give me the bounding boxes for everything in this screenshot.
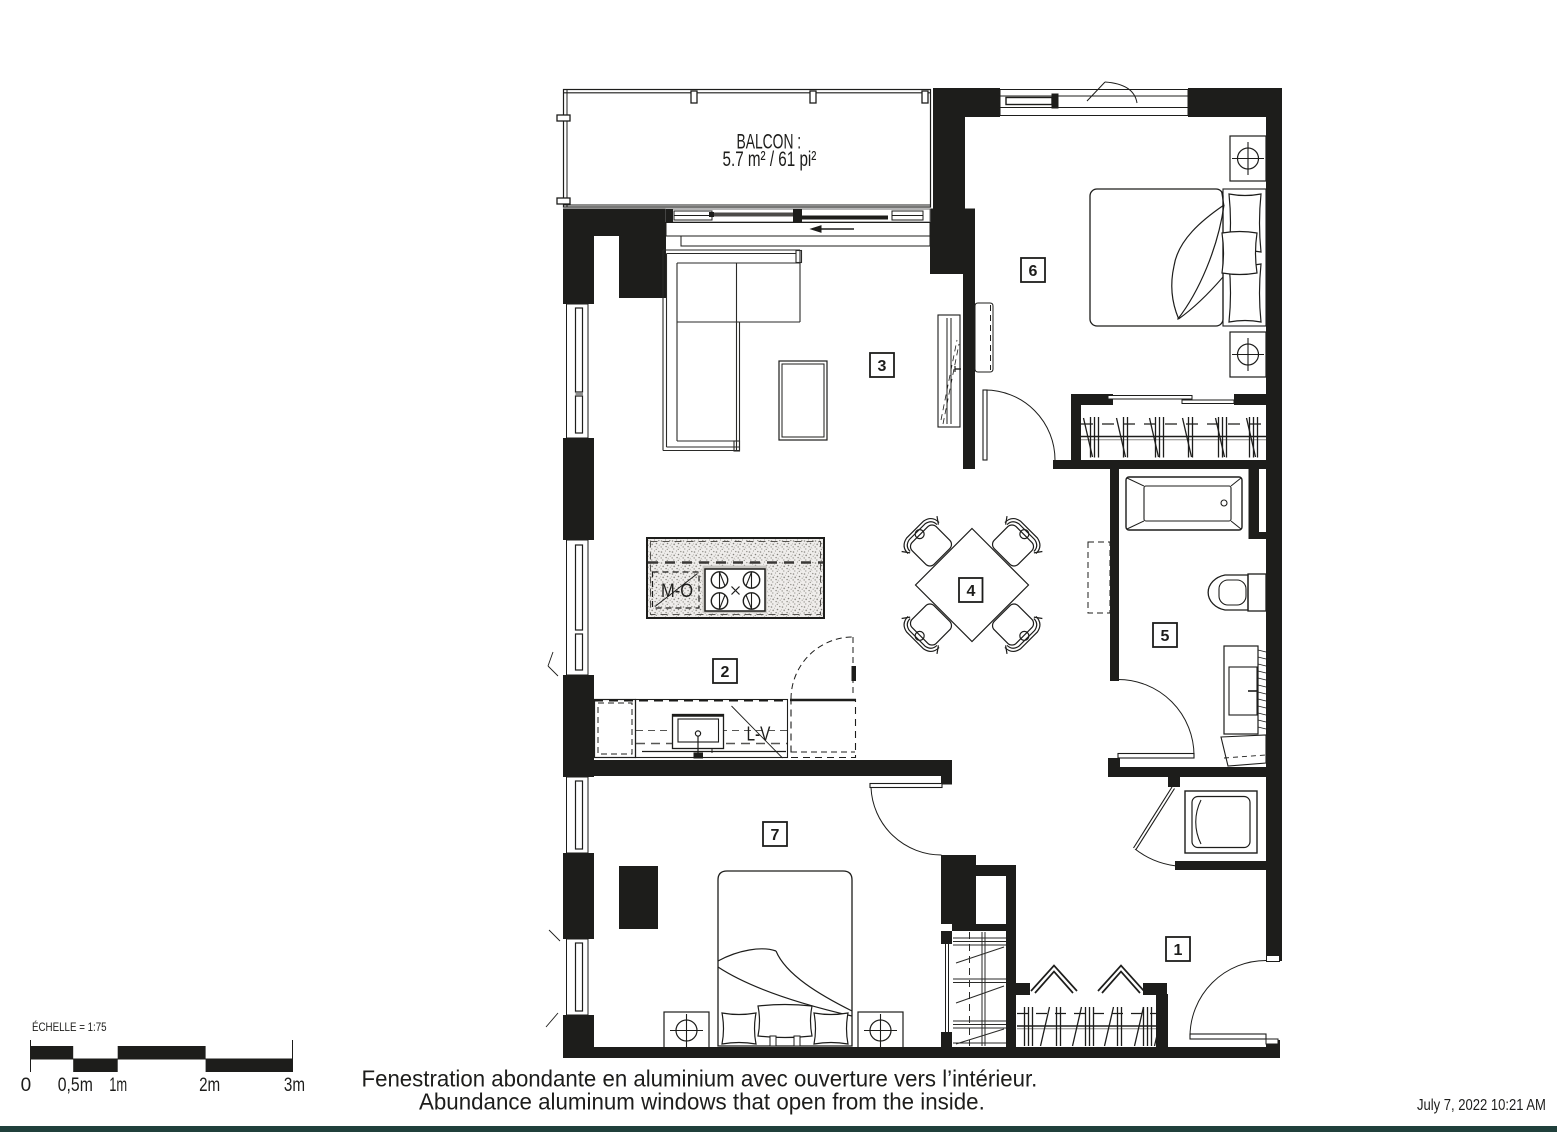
svg-text:5.7 m² / 61 pi²: 5.7 m² / 61 pi² [723, 146, 817, 170]
svg-text:July 7, 2022 10:21 AM: July 7, 2022 10:21 AM [1417, 1097, 1546, 1115]
svg-text:M-O: M-O [661, 580, 693, 601]
svg-text:2: 2 [721, 664, 730, 681]
svg-text:1: 1 [1174, 942, 1183, 959]
svg-text:3m: 3m [284, 1073, 305, 1095]
svg-text:7: 7 [771, 827, 780, 844]
svg-text:0,5m: 0,5m [58, 1074, 93, 1096]
svg-text:5: 5 [1161, 628, 1170, 645]
svg-text:0: 0 [21, 1075, 32, 1096]
svg-text:ÉCHELLE = 1:75: ÉCHELLE = 1:75 [32, 1020, 107, 1034]
svg-text:3: 3 [878, 358, 887, 375]
svg-text:4: 4 [967, 583, 976, 600]
svg-text:L-V: L-V [747, 723, 771, 745]
svg-text:2m: 2m [199, 1073, 220, 1095]
svg-text:1m: 1m [109, 1075, 127, 1096]
svg-text:Abundance aluminum windows tha: Abundance aluminum windows that open fro… [419, 1088, 985, 1114]
svg-text:6: 6 [1029, 263, 1038, 280]
